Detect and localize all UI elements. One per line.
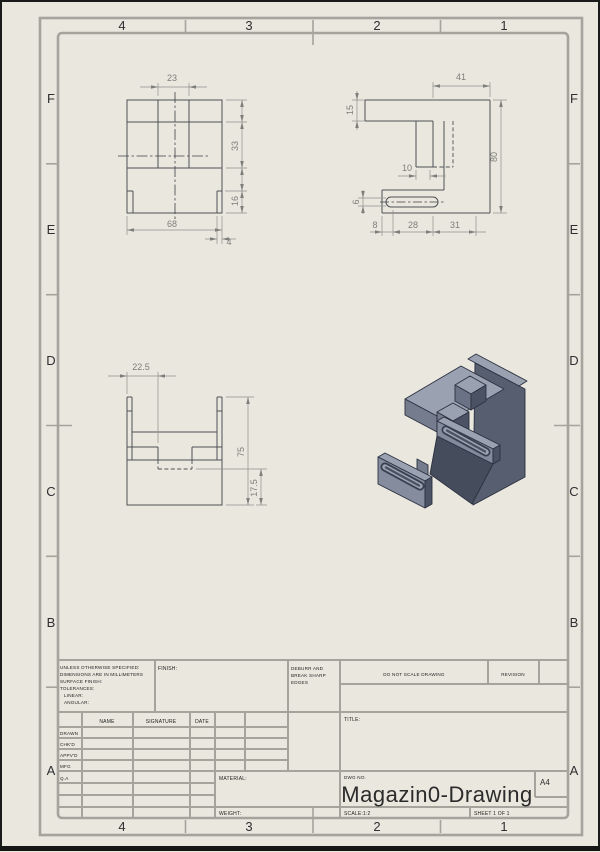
dim-front-23: 23 bbox=[167, 73, 177, 83]
approval-row-label: APPV'D bbox=[60, 753, 78, 758]
approval-row-label: CHK'D bbox=[60, 742, 75, 747]
paper-size: A4 bbox=[540, 778, 550, 787]
dim-side-31: 31 bbox=[450, 220, 460, 230]
side-view: 41 15 10 6 8 28 31 80 bbox=[345, 72, 507, 236]
dim-side-15: 15 bbox=[345, 105, 355, 115]
isometric-view bbox=[378, 354, 527, 508]
front-dim-lines bbox=[127, 83, 247, 244]
sheet-canvas: 4 3 2 1 4 3 2 1 F E D C B A F E D C B A bbox=[0, 0, 600, 852]
spec-line: LINEAR: bbox=[64, 693, 83, 698]
dim-side-8: 8 bbox=[372, 220, 377, 230]
weight-label: WEIGHT: bbox=[219, 811, 241, 817]
spec-line: TOLERANCES: bbox=[60, 686, 95, 691]
zone-row-right: E bbox=[570, 222, 579, 237]
scale-text: SCALE:1:2 bbox=[344, 811, 371, 817]
spec-line: SURFACE FINISH: bbox=[60, 679, 102, 684]
zone-col-top: 4 bbox=[118, 18, 125, 33]
dim-top-75: 75 bbox=[236, 447, 246, 457]
dim-front-68: 68 bbox=[167, 219, 177, 229]
top-dim-arrows bbox=[120, 374, 263, 505]
spec-line: DIMENSIONS ARE IN MILLIMETERS bbox=[60, 672, 143, 677]
material-label: MATERIAL: bbox=[219, 776, 247, 782]
title-label: TITLE: bbox=[344, 717, 360, 723]
deburr-line: EDGES bbox=[291, 680, 308, 685]
approval-row-label: Q.A bbox=[60, 776, 69, 781]
zone-row-left: A bbox=[47, 763, 56, 778]
deburr-line: BREAK SHARP bbox=[291, 673, 326, 678]
dim-side-6: 6 bbox=[351, 199, 361, 204]
zone-col-bottom: 3 bbox=[245, 819, 252, 834]
centerlines bbox=[118, 92, 208, 220]
zone-col-bottom: 4 bbox=[118, 819, 125, 834]
zone-row-right: F bbox=[570, 91, 578, 106]
dim-front-33: 33 bbox=[230, 141, 240, 151]
side-dim-arrows bbox=[355, 84, 503, 234]
zone-col-bottom: 1 bbox=[500, 819, 507, 834]
zone-row-right: C bbox=[569, 484, 578, 499]
spec-line: ANGULAR: bbox=[64, 700, 89, 705]
do-not-scale-label: DO NOT SCALE DRAWING bbox=[383, 672, 445, 677]
date-header: DATE bbox=[195, 719, 209, 725]
zone-row-left: B bbox=[47, 615, 56, 630]
zone-row-left: C bbox=[46, 484, 55, 499]
zone-col-bottom: 2 bbox=[373, 819, 380, 834]
part-bracket-end bbox=[425, 477, 432, 508]
zone-row-left: F bbox=[47, 91, 55, 106]
tolerance-note: UNLESS OTHERWISE SPECIFIED: DIMENSIONS A… bbox=[60, 665, 143, 705]
approval-row-label: MFG bbox=[60, 764, 71, 769]
spec-line: UNLESS OTHERWISE SPECIFIED: bbox=[60, 665, 140, 670]
approval-row-label: DRAWN bbox=[60, 731, 78, 736]
deburr-note: DEBURR AND BREAK SHARP EDGES bbox=[291, 666, 326, 685]
title-block: UNLESS OTHERWISE SPECIFIED: DIMENSIONS A… bbox=[58, 660, 568, 818]
dim-top-22-5: 22.5 bbox=[132, 362, 150, 372]
top-view: 22.5 75 17.5 bbox=[108, 362, 267, 505]
zone-col-top: 1 bbox=[500, 18, 507, 33]
front-dim-arrows bbox=[127, 85, 244, 241]
finish-label: FINISH: bbox=[158, 666, 177, 672]
zone-row-left: E bbox=[47, 222, 56, 237]
dim-side-28: 28 bbox=[408, 220, 418, 230]
zone-row-right: B bbox=[570, 615, 579, 630]
zone-row-right: D bbox=[569, 353, 578, 368]
dim-front-16: 16 bbox=[230, 196, 240, 206]
hidden-lines bbox=[433, 121, 453, 167]
zone-row-right: A bbox=[570, 763, 579, 778]
zone-col-top: 3 bbox=[245, 18, 252, 33]
dwg-no-label: DWG NO. bbox=[344, 775, 366, 780]
dim-top-17-5: 17.5 bbox=[249, 479, 259, 497]
dim-side-80: 80 bbox=[489, 152, 499, 162]
signature-header: SIGNATURE bbox=[146, 719, 177, 725]
drawing-sheet: 4 3 2 1 4 3 2 1 F E D C B A F E D C B A bbox=[0, 0, 600, 852]
sheet-text: SHEET 1 OF 1 bbox=[474, 811, 510, 817]
dim-front-4: 4 bbox=[226, 237, 231, 247]
zone-col-top: 2 bbox=[373, 18, 380, 33]
front-view: 23 33 16 68 4 bbox=[118, 73, 247, 247]
zone-row-left: D bbox=[46, 353, 55, 368]
deburr-line: DEBURR AND bbox=[291, 666, 324, 671]
drawing-number: Magazin0-Drawing bbox=[341, 782, 532, 807]
revision-label: REVISION bbox=[501, 672, 525, 677]
dim-side-10: 10 bbox=[402, 163, 412, 173]
dim-side-41: 41 bbox=[456, 72, 466, 82]
name-header: NAME bbox=[99, 719, 115, 725]
